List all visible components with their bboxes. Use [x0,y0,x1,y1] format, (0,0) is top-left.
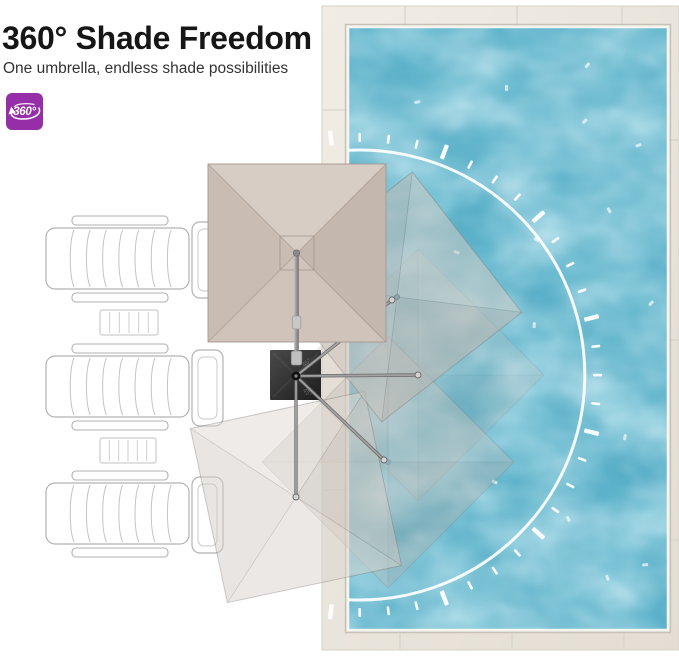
rotate-360-icon [6,93,43,130]
page-title: 360° Shade Freedom [2,20,332,57]
lounge-chair-1 [46,216,223,302]
pole-collar [292,316,301,329]
hero-image: 45°45° 360° Shade Freedom One umbrella, … [0,0,679,662]
lounge-chair-3 [46,471,223,557]
umbrella-pole [294,253,299,353]
umbrella [208,164,386,365]
side-table-2 [100,438,156,463]
lounge-chair-2 [46,344,223,430]
pool-scene: 45°45° [0,0,679,662]
rotate-360-badge: 360° [6,93,43,130]
base-collar [291,351,302,365]
side-table-1 [100,310,158,335]
page-subtitle: One umbrella, endless shade possibilitie… [3,60,333,78]
lounge-chairs [46,216,223,557]
